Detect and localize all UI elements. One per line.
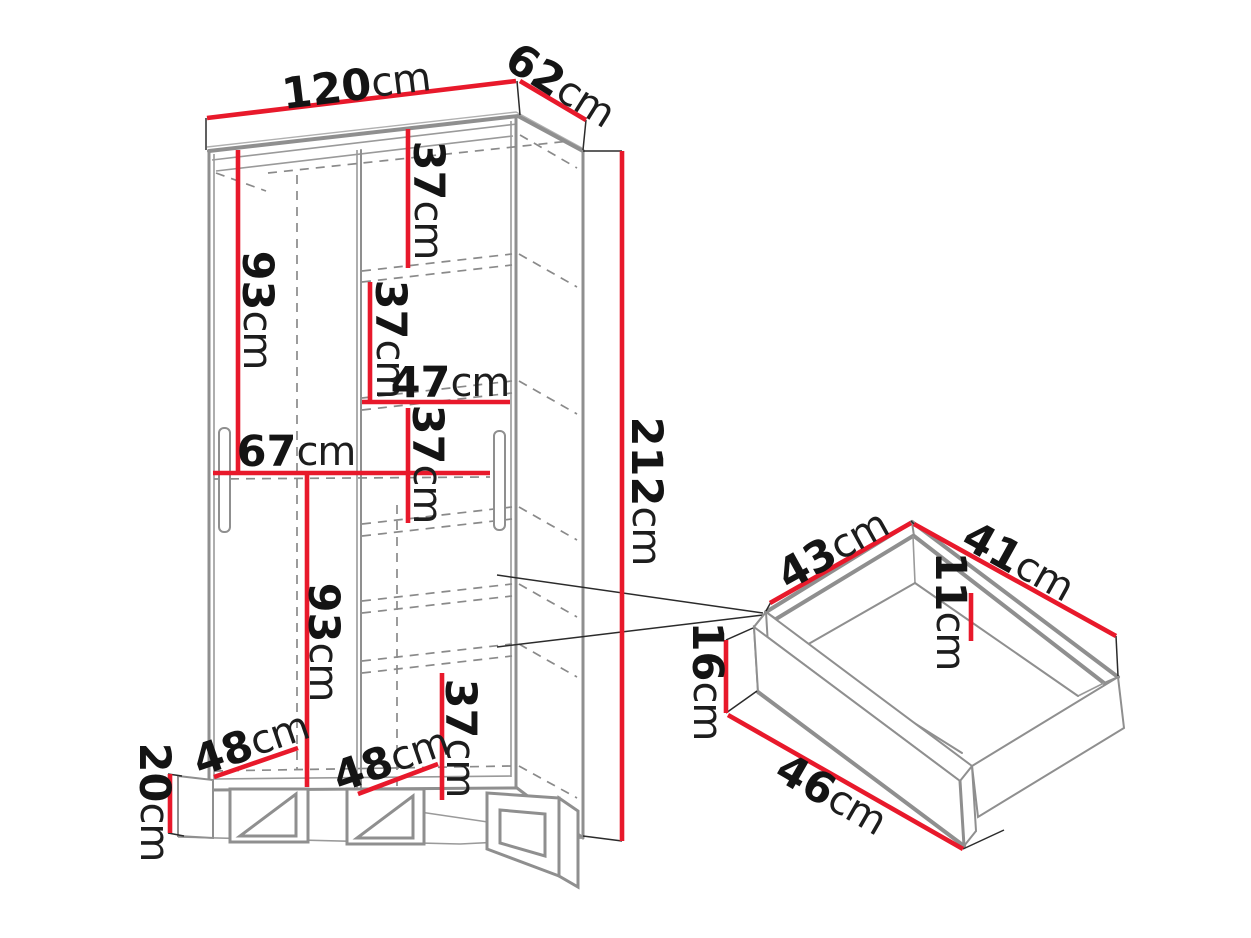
left-door-handle [219, 428, 230, 532]
furniture-dimension-diagram: 120cm 62cm 212cm 37cm 37cm 47cm 37cm 93c… [0, 0, 1251, 938]
label-left-upper-height: 93cm [232, 251, 282, 370]
diagram-canvas: 120cm 62cm 212cm 37cm 37cm 47cm 37cm 93c… [0, 0, 1251, 938]
wardrobe-leg-right [487, 793, 578, 887]
label-top-shelf-gap: 37cm [403, 141, 453, 260]
label-height: 212cm [621, 417, 671, 566]
label-third-shelf-gap: 37cm [402, 405, 452, 524]
label-left-foot-inset: 48cm [187, 701, 316, 787]
label-drawer-front-height: 16cm [682, 622, 732, 741]
label-left-compartment-width: 67cm [237, 427, 356, 477]
right-door-handle [494, 431, 505, 530]
label-plinth-height: 20cm [129, 743, 179, 862]
wardrobe-leg-left [230, 789, 308, 842]
label-width: 120cm [279, 52, 433, 120]
label-left-lower-height: 93cm [298, 583, 348, 702]
label-shelf-width: 47cm [391, 358, 510, 408]
dimension-labels: 120cm 62cm 212cm 37cm 37cm 47cm 37cm 93c… [129, 33, 1082, 861]
label-drawer-inner-height: 11cm [925, 552, 975, 671]
